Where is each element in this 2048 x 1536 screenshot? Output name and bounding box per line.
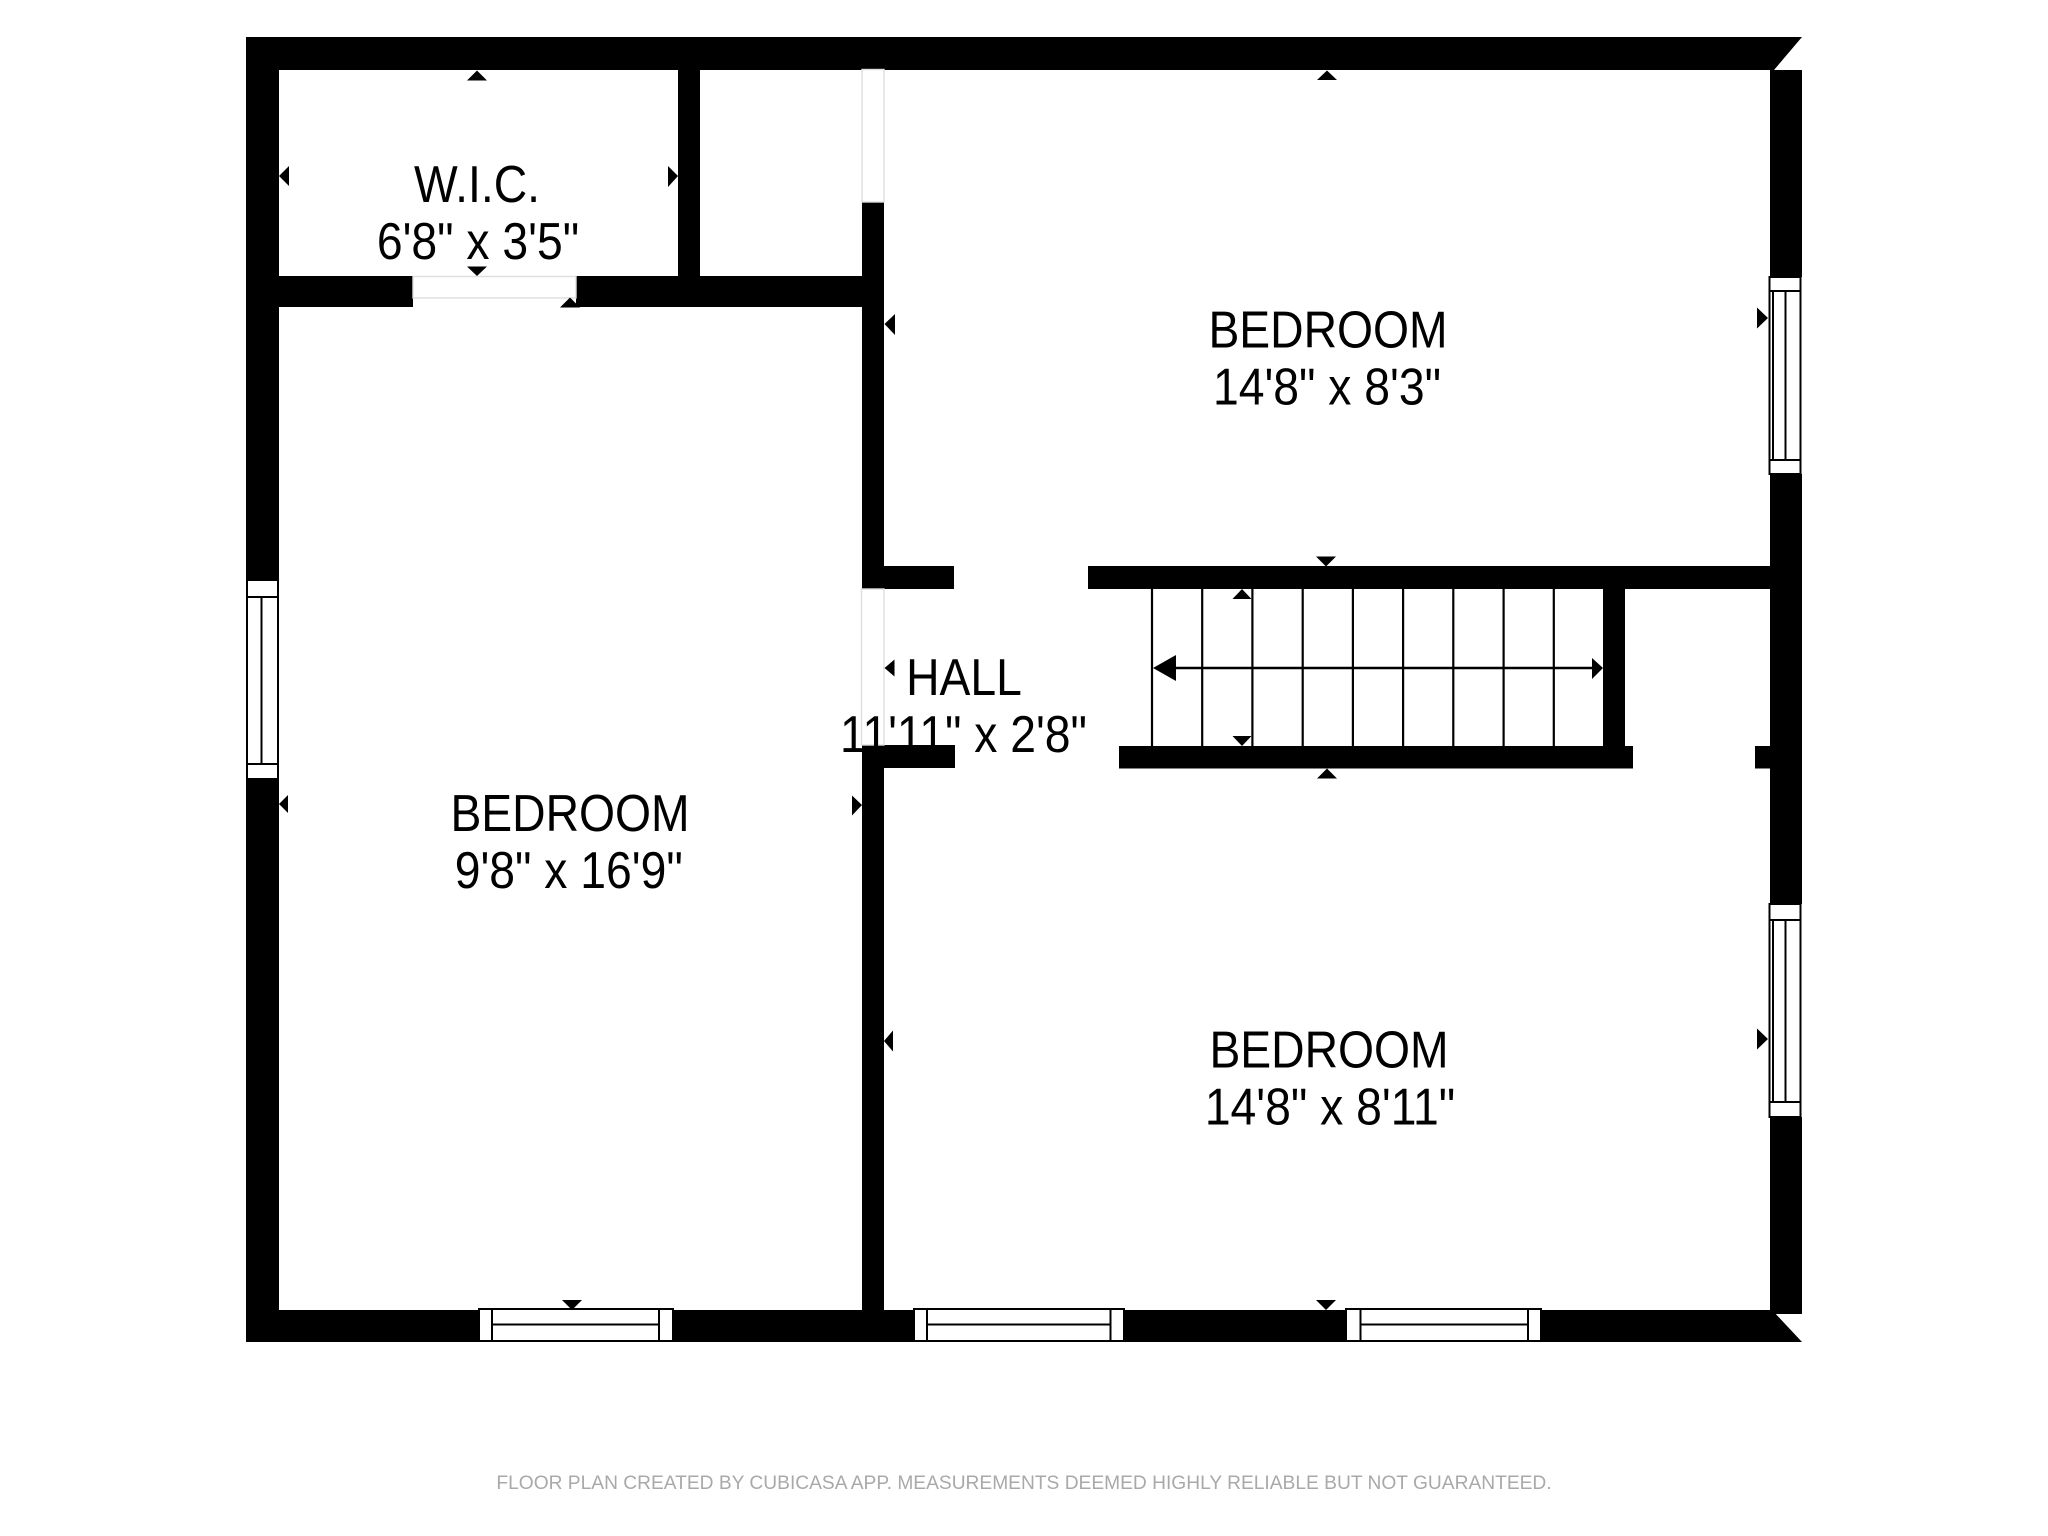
svg-text:HALL: HALL xyxy=(906,649,1022,707)
svg-text:6'8" x 3'5": 6'8" x 3'5" xyxy=(377,213,579,271)
svg-text:14'8" x 8'3": 14'8" x 8'3" xyxy=(1213,358,1441,416)
svg-text:9'8" x 16'9": 9'8" x 16'9" xyxy=(455,842,683,900)
svg-text:11'11" x 2'8": 11'11" x 2'8" xyxy=(840,706,1087,764)
svg-text:BEDROOM: BEDROOM xyxy=(450,785,689,843)
svg-text:FLOOR PLAN CREATED BY CUBICASA: FLOOR PLAN CREATED BY CUBICASA APP. MEAS… xyxy=(496,1473,1551,1494)
svg-text:W.I.C.: W.I.C. xyxy=(414,156,540,214)
svg-text:BEDROOM: BEDROOM xyxy=(1209,1021,1448,1079)
svg-text:14'8" x 8'11": 14'8" x 8'11" xyxy=(1205,1078,1455,1136)
svg-text:BEDROOM: BEDROOM xyxy=(1208,301,1447,359)
